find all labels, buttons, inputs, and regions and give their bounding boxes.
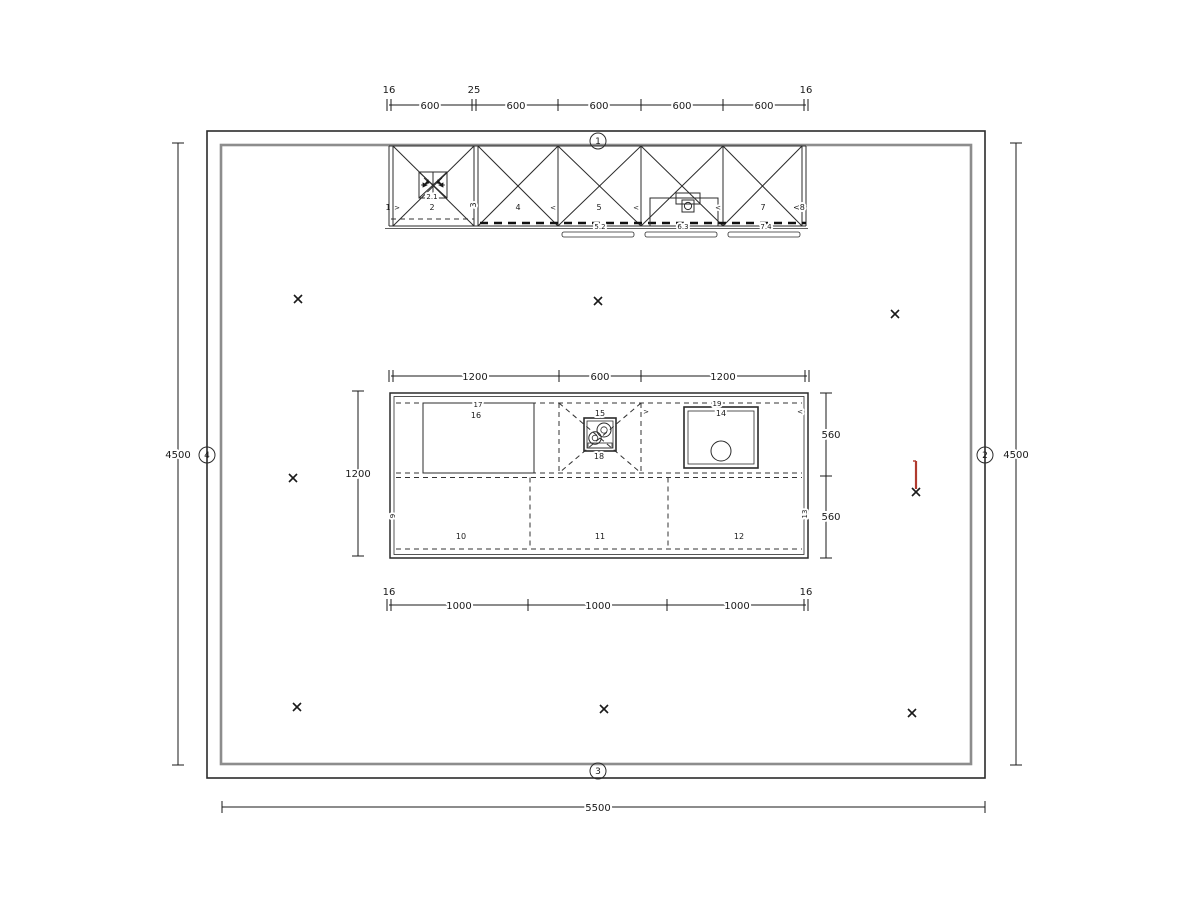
cross-marker <box>594 297 602 305</box>
cabinet-handles <box>562 232 800 237</box>
island-right-end-label: 13 <box>801 510 809 519</box>
cross-marker <box>294 295 302 303</box>
room-dim-right-label: 4500 <box>1003 450 1028 461</box>
room-dim-left-label: 4500 <box>165 450 190 461</box>
cross-marker <box>891 310 899 318</box>
cross-marker <box>912 488 920 496</box>
floor-plan-canvas: 1 2 3 4 4500 4500 5500 <box>0 0 1200 900</box>
red-cursor-marker <box>913 461 916 489</box>
cross-marker <box>289 474 297 482</box>
cabinet-4-label: 4 <box>515 203 520 212</box>
cross-marker <box>908 709 916 717</box>
cabinet-5-arrow: < <box>633 204 639 212</box>
top-dim-seg-5: 600 <box>754 101 773 112</box>
island-cell-10-label: 10 <box>456 532 466 541</box>
room-dim-left: 4500 <box>165 143 190 765</box>
room-dim-right: 4500 <box>1003 143 1028 765</box>
grid-bubble-bottom-label: 3 <box>595 767 601 777</box>
top-dim-mid: 25 <box>468 85 481 96</box>
island-left-dim-label: 1200 <box>345 469 370 480</box>
island-top-dimension: 1200 600 1200 <box>389 370 809 383</box>
grid-bubble-bottom: 3 <box>590 763 606 779</box>
island-right-dim-lower: 560 <box>821 512 840 523</box>
island-cell-12-label: 12 <box>734 532 744 541</box>
cabinet-4-arrow: < <box>550 204 556 212</box>
sink-line-label: 19 <box>713 400 722 408</box>
island-arrow-left: < <box>797 408 803 416</box>
board-label: 16 <box>471 411 481 420</box>
top-dim-seg-1: 600 <box>420 101 439 112</box>
handle-6-3-label: 6.3 <box>677 223 688 231</box>
sink-label: 14 <box>716 409 726 418</box>
cooker-hood-symbol <box>650 193 718 226</box>
grid-bubble-right-label: 2 <box>982 451 988 461</box>
cabinet-1-label: 1 <box>385 203 390 212</box>
island-arrow-right: > <box>643 408 649 416</box>
cabinet-3-label: 3 <box>469 202 478 207</box>
grid-bubble-left-label: 4 <box>204 451 210 461</box>
top-dim-seg-3: 600 <box>589 101 608 112</box>
island-top-seg-1: 1200 <box>462 372 487 383</box>
cabinet-x-crosses <box>393 146 802 226</box>
island-bottom-end-right: 16 <box>800 587 813 598</box>
room-dim-bottom: 5500 <box>222 801 985 814</box>
cooktop-top-label: 15 <box>595 409 605 418</box>
island-cell-11-label: 11 <box>595 532 605 541</box>
island-top-seg-3: 1200 <box>710 372 735 383</box>
island-bottom-seg-2: 1000 <box>585 601 610 612</box>
island-bottom-seg-1: 1000 <box>446 601 471 612</box>
cabinet-2-label: 2 <box>429 203 434 212</box>
floor-plan-drawing: 1 2 3 4 4500 4500 5500 <box>0 0 1200 900</box>
cabinet-5-label: 5 <box>596 203 601 212</box>
cross-marker <box>600 705 608 713</box>
cooktop-symbol <box>584 418 616 451</box>
room-dim-bottom-label: 5500 <box>585 803 610 814</box>
kitchen-island: 17 16 15 18 19 14 > < 9 13 10 11 12 <box>389 393 809 558</box>
cooktop-bottom-label: 18 <box>594 452 604 461</box>
island-bottom-seg-3: 1000 <box>724 601 749 612</box>
island-left-end-label: 9 <box>389 514 397 518</box>
grid-bubble-top: 1 <box>590 133 606 149</box>
top-dim-seg-2: 600 <box>506 101 525 112</box>
cabinet-8-label: <8 <box>793 203 805 212</box>
top-dim-seg-4: 600 <box>672 101 691 112</box>
island-bottom-dimension: 16 16 1000 1000 1000 <box>383 587 813 612</box>
cabinet-7-label: 7 <box>760 203 765 212</box>
cabinet-1-arrow: > <box>394 204 400 212</box>
handle-5-2-label: 5.2 <box>594 223 605 231</box>
island-left-dimension: 1200 <box>345 391 370 556</box>
island-top-seg-2: 600 <box>590 372 609 383</box>
top-run-dimension: 16 25 16 600 600 600 600 600 <box>383 85 813 112</box>
island-right-dimension: 560 560 <box>820 393 841 558</box>
top-dim-end-left: 16 <box>383 85 396 96</box>
top-dim-end-right: 16 <box>800 85 813 96</box>
handle-7-4-label: 7.4 <box>760 223 772 231</box>
cross-marker <box>293 703 301 711</box>
cross-markers <box>289 295 920 717</box>
island-right-dim-upper: 560 <box>821 430 840 441</box>
wall-cabinet-run: 1 > 2 2.1 3 4 < 5 < < 7 <8 5.2 6.3 7.4 <box>385 146 808 237</box>
fan-label: 2.1 <box>426 193 437 201</box>
board-line-label: 17 <box>474 401 483 409</box>
cabinet-6-arrow: < <box>715 204 721 212</box>
island-bottom-end-left: 16 <box>383 587 396 598</box>
